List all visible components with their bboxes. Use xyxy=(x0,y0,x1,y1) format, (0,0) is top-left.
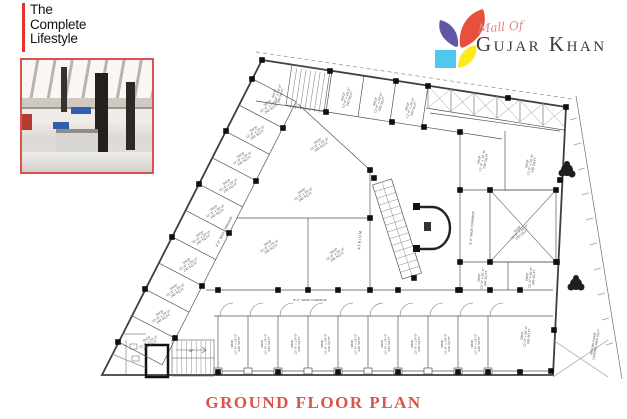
shop-label: SHOP12'-0" x 20'-0"240 SQ.FT xyxy=(290,333,301,355)
column-marker xyxy=(455,369,461,375)
shop-label: SHOP12'-0" x 20'-0"240 SQ.FT xyxy=(243,121,268,142)
shop-label: SHOP12'-0" x 20'-0"240 SQ.FT xyxy=(136,331,161,352)
page-title: GROUND FLOOR PLAN xyxy=(0,393,627,413)
shop-label: SHOP12'-0" x 20'-0"240 SQ.FT xyxy=(410,333,421,355)
column-marker xyxy=(425,83,431,89)
column-marker xyxy=(517,369,523,375)
shop-label: SHOP12'-0" x 20'-0"240 SQ.FT xyxy=(230,147,255,168)
column-marker xyxy=(553,259,559,265)
side-note: GROUND FLOORCOVERED AREA SQ.FT xyxy=(588,328,601,360)
column-marker xyxy=(275,369,281,375)
column-marker xyxy=(553,187,559,193)
column-marker xyxy=(487,187,493,193)
column-marker xyxy=(335,369,341,375)
column-marker xyxy=(551,327,557,333)
column-marker xyxy=(421,124,427,130)
column-marker xyxy=(215,287,221,293)
column-marker xyxy=(563,104,569,110)
column-marker xyxy=(517,287,523,293)
column-marker xyxy=(367,287,373,293)
column-marker xyxy=(485,369,491,375)
column-marker xyxy=(275,287,281,293)
column-marker xyxy=(142,286,148,292)
column-marker xyxy=(367,215,373,221)
column-marker xyxy=(395,287,401,293)
column-marker xyxy=(196,181,202,187)
column-marker xyxy=(457,259,463,265)
stairs-up-label: UP xyxy=(189,349,193,353)
plan-walls xyxy=(102,52,622,379)
shop-label: SHOP12'-0" x 20'-0"240 SQ.FT xyxy=(176,253,201,274)
shop-label: SHOP12'-0" x 20'-0"240 SQ.FT xyxy=(519,324,532,347)
shop-label: SHOP12'-0" x 20'-0"240 SQ.FT xyxy=(307,133,332,154)
shop-label: SHOP12'-0" x 20'-0"240 SQ.FT xyxy=(470,333,481,355)
shop-label: SHOP12'-0" x 20'-0"240 SQ.FT xyxy=(189,226,214,247)
shop-label: SHOP12'-0" x 20'-0"240 SQ.FT xyxy=(508,220,532,243)
elevator-lift xyxy=(413,203,450,252)
shop-label: SHOP12'-0" x 20'-0"240 SQ.FT xyxy=(257,235,282,256)
shop-label: SHOP12'-0" x 20'-0"240 SQ.FT xyxy=(370,90,387,115)
column-marker xyxy=(249,76,255,82)
shop-label: SHOP12'-0" x 20'-0"240 SQ.FT xyxy=(523,152,538,176)
column-marker xyxy=(487,287,493,293)
shop-label: SHOP12'-0" x 20'-0"240 SQ.FT xyxy=(475,148,490,172)
shop-label: SHOP12'-0" x 20'-0"240 SQ.FT xyxy=(476,266,489,289)
shop-label: SHOP12'-0" x 20'-0"240 SQ.FT xyxy=(350,333,361,355)
shop-label: SHOP12'-0" x 20'-0"240 SQ.FT xyxy=(320,333,331,355)
plan-dynamic-layer: SHOP12'-0" x 20'-0"240 SQ.FTSHOP12'-0" x… xyxy=(115,57,613,375)
column-marker xyxy=(172,335,178,341)
column-marker xyxy=(367,167,373,173)
column-marker xyxy=(253,178,259,184)
column-marker xyxy=(305,287,311,293)
column-marker xyxy=(505,95,511,101)
column-marker xyxy=(223,128,229,134)
column-marker xyxy=(548,368,554,374)
shop-label: SHOP12'-0" x 20'-0"240 SQ.FT xyxy=(291,183,316,204)
shop-label: SHOP12'-0" x 20'-0"240 SQ.FT xyxy=(163,279,188,300)
column-marker xyxy=(457,187,463,193)
shop-label: SHOP12'-0" x 20'-0"240 SQ.FT xyxy=(260,333,271,355)
shop-label: SHOP12'-0" x 20'-0"240 SQ.FT xyxy=(402,95,419,120)
staircase-top xyxy=(286,65,330,113)
column-marker xyxy=(389,119,395,125)
column-marker xyxy=(115,339,121,345)
shop-label: SHOP12'-0" x 20'-0"240 SQ.FT xyxy=(203,200,228,221)
column-marker xyxy=(226,230,232,236)
column-marker xyxy=(259,57,265,63)
atrium-label: ATRIUM xyxy=(357,230,363,250)
corridor-label-bottom: 8'-0" WIDE CORRIDOR xyxy=(293,298,326,302)
column-marker xyxy=(327,68,333,74)
shop-label: SHOP12'-0" x 20'-0"240 SQ.FT xyxy=(380,333,391,355)
column-marker xyxy=(335,287,341,293)
column-marker xyxy=(487,259,493,265)
column-marker xyxy=(323,109,329,115)
corridor-label-vertical: 8'-0" WIDE CORRIDOR xyxy=(469,211,476,245)
column-marker xyxy=(411,275,417,281)
column-marker xyxy=(215,369,221,375)
shop-label: SHOP12'-0" x 20'-0"240 SQ.FT xyxy=(440,333,451,355)
brochure-page: The Complete Lifestyle Mall Of Gujar Kha… xyxy=(0,0,627,419)
column-marker xyxy=(371,175,377,181)
shop-label: SHOP12'-0" x 20'-0"240 SQ.FT xyxy=(323,243,348,264)
column-marker xyxy=(457,287,463,293)
column-marker xyxy=(395,369,401,375)
shop-label: SHOP12'-0" x 20'-0"240 SQ.FT xyxy=(338,85,355,110)
plan-major-labels: ATRIUM 8'-0" WIDE CORRIDOR 8'-0" WIDE CO… xyxy=(189,211,476,353)
column-marker xyxy=(557,177,563,183)
column-marker xyxy=(169,234,175,240)
shop-label: SHOP12'-0" x 20'-0"240 SQ.FT xyxy=(216,174,241,195)
floor-plan-drawing: SHOP12'-0" x 20'-0"240 SQ.FTSHOP12'-0" x… xyxy=(0,0,627,395)
column-marker xyxy=(457,129,463,135)
column-marker xyxy=(280,125,286,131)
shop-label: SHOP12'-0" x 20'-0"240 SQ.FT xyxy=(149,305,174,326)
shop-label: SHOP12'-0" x 20'-0"240 SQ.FT xyxy=(230,333,241,355)
column-marker xyxy=(393,78,399,84)
staircase-bottom xyxy=(172,340,214,376)
shop-label: SHOP12'-0" x 20'-0"240 SQ.FT xyxy=(524,265,537,288)
column-marker xyxy=(199,283,205,289)
